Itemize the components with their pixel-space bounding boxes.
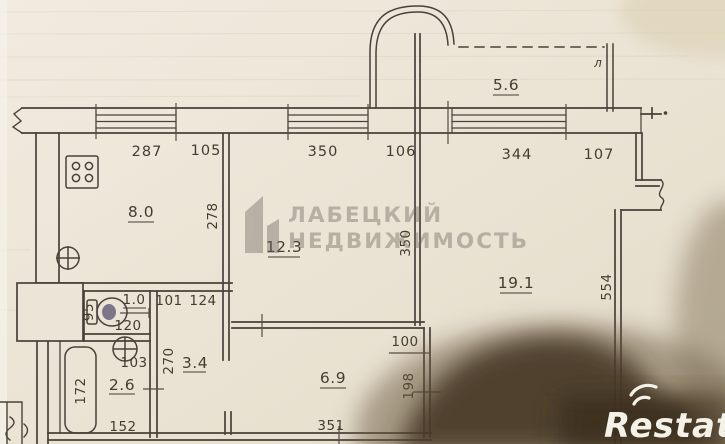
restate-brand-text: Restate [604,406,725,444]
dim-bedroom-width: 344 [502,147,533,163]
dim-corridor-width: 351 [317,418,344,434]
wall-end-dot [664,111,668,115]
dim-wc-width: 120 [114,318,141,334]
dim-hallway-depth: 270 [161,347,177,374]
area-bedroom: 19.1 [498,274,535,292]
area-bathroom: 2.6 [109,376,135,394]
area-hallway: 3.4 [182,354,208,372]
dim-pier-1: 105 [191,143,222,159]
dim-opening-width: 100 [391,334,418,350]
dim-hallway-top-1: 101 [155,293,182,309]
dim-bedroom-depth: 554 [599,273,615,300]
dim-living-width: 350 [308,144,339,160]
dim-tub-length: 172 [73,377,89,404]
area-wc: 1.0 [123,292,146,308]
dim-pier-2: 106 [386,144,417,160]
dim-kitchen-width: 287 [132,144,163,160]
page-edge [0,0,7,444]
dim-bath-width: 152 [109,419,136,435]
dim-kitchen-depth: 278 [205,202,221,229]
loggia-letter: л [593,56,602,70]
wall-block [17,283,83,341]
area-kitchen: 8.0 [128,203,154,221]
floorplan-photo: 287 105 350 106 344 107 5.6 л 8.0 278 12… [0,0,725,444]
floorplan-image: 287 105 350 106 344 107 5.6 л 8.0 278 12… [0,0,725,444]
watermark-line1: ЛАБЕЦКИЙ [288,202,443,228]
dim-pier-3: 107 [584,147,615,163]
area-corridor: 6.9 [320,369,346,387]
dim-basin-width: 103 [120,355,147,371]
area-loggia: 5.6 [493,76,519,94]
dim-hallway-top-2: 124 [189,293,216,309]
dim-wc-depth: 95 [81,303,97,321]
watermark-line2: НЕДВИЖИМОСТЬ [288,229,529,254]
